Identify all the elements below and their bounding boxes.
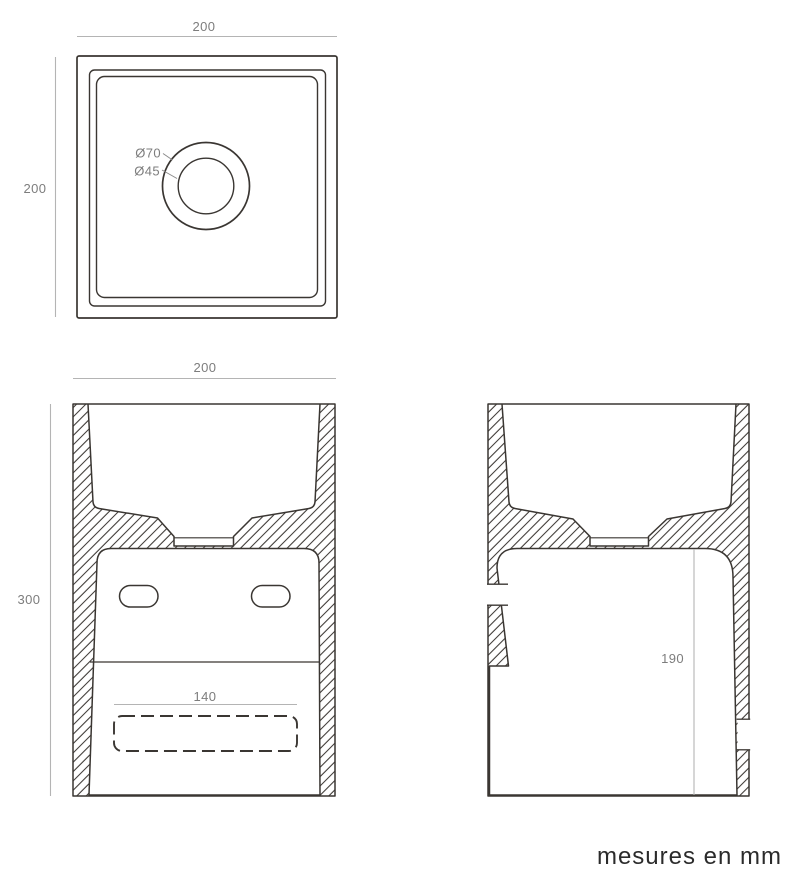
drain-inner-dia-label: Ø45: [134, 164, 160, 179]
front-section-view: 200 300 140: [18, 360, 336, 796]
top-view-height-dimension-label: 200: [24, 181, 47, 196]
top-view-outer-rim: [77, 56, 337, 318]
side-view-recess-dimension-label: 190: [661, 651, 684, 666]
technical-drawing-page: 200 200 Ø70 Ø45 200 300 140: [0, 0, 800, 884]
side-view-section-body: [488, 404, 749, 796]
front-view-right-fixing-hole: [252, 586, 291, 608]
front-view-slot-dimension-label: 140: [194, 689, 217, 704]
top-view-width-dimension-label: 200: [193, 19, 216, 34]
side-view-front-wall-hole-gap: [487, 584, 509, 605]
front-view-section-body: [73, 404, 335, 796]
side-section-view: 190: [487, 404, 750, 796]
front-view-width-dimension-label: 200: [194, 360, 217, 375]
units-caption: mesures en mm: [597, 843, 782, 871]
front-view-hidden-slot-outline: [114, 716, 297, 751]
basin-technical-drawing: 200 200 Ø70 Ø45 200 300 140: [0, 0, 800, 884]
front-view-left-fixing-hole: [120, 586, 159, 608]
side-view-back-wall-slot-gap: [738, 719, 751, 750]
front-view-height-dimension-label: 300: [18, 592, 41, 607]
drain-outer-dia-label: Ø70: [135, 146, 161, 161]
top-view: 200 200 Ø70 Ø45: [24, 19, 337, 318]
